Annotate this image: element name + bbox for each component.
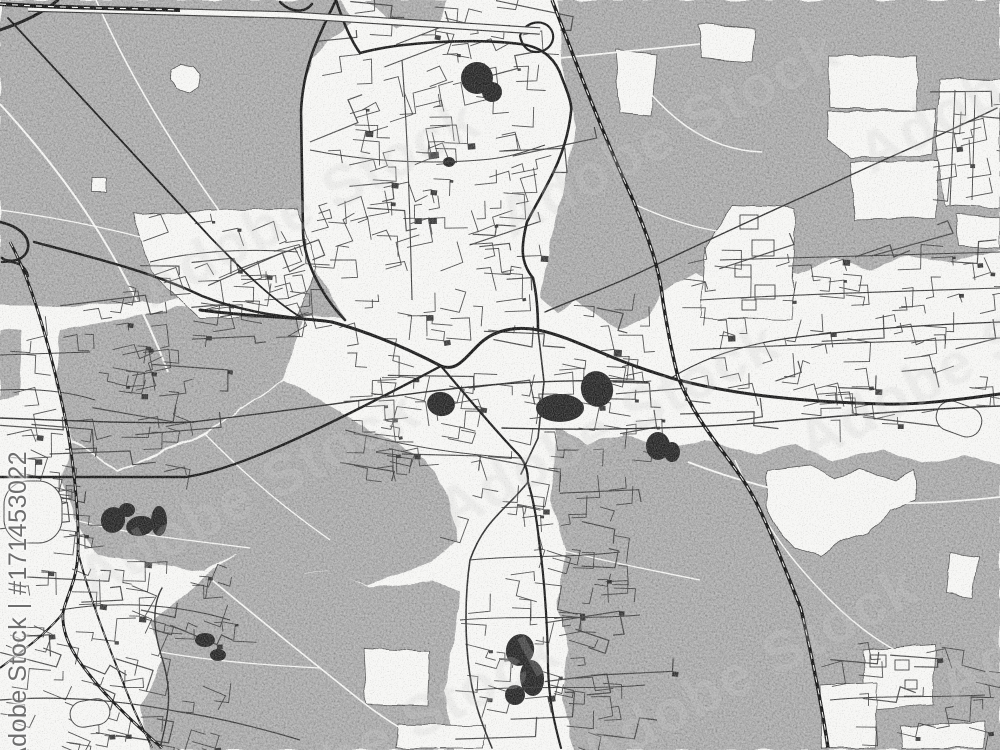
paper-texture-layer bbox=[0, 0, 1000, 750]
dark-speckle-texture bbox=[0, 0, 1000, 750]
map-canvas bbox=[0, 0, 1000, 750]
stock-photo-map: Adobe StockAdobe StockAdobe StockAdobe S… bbox=[0, 0, 1000, 750]
